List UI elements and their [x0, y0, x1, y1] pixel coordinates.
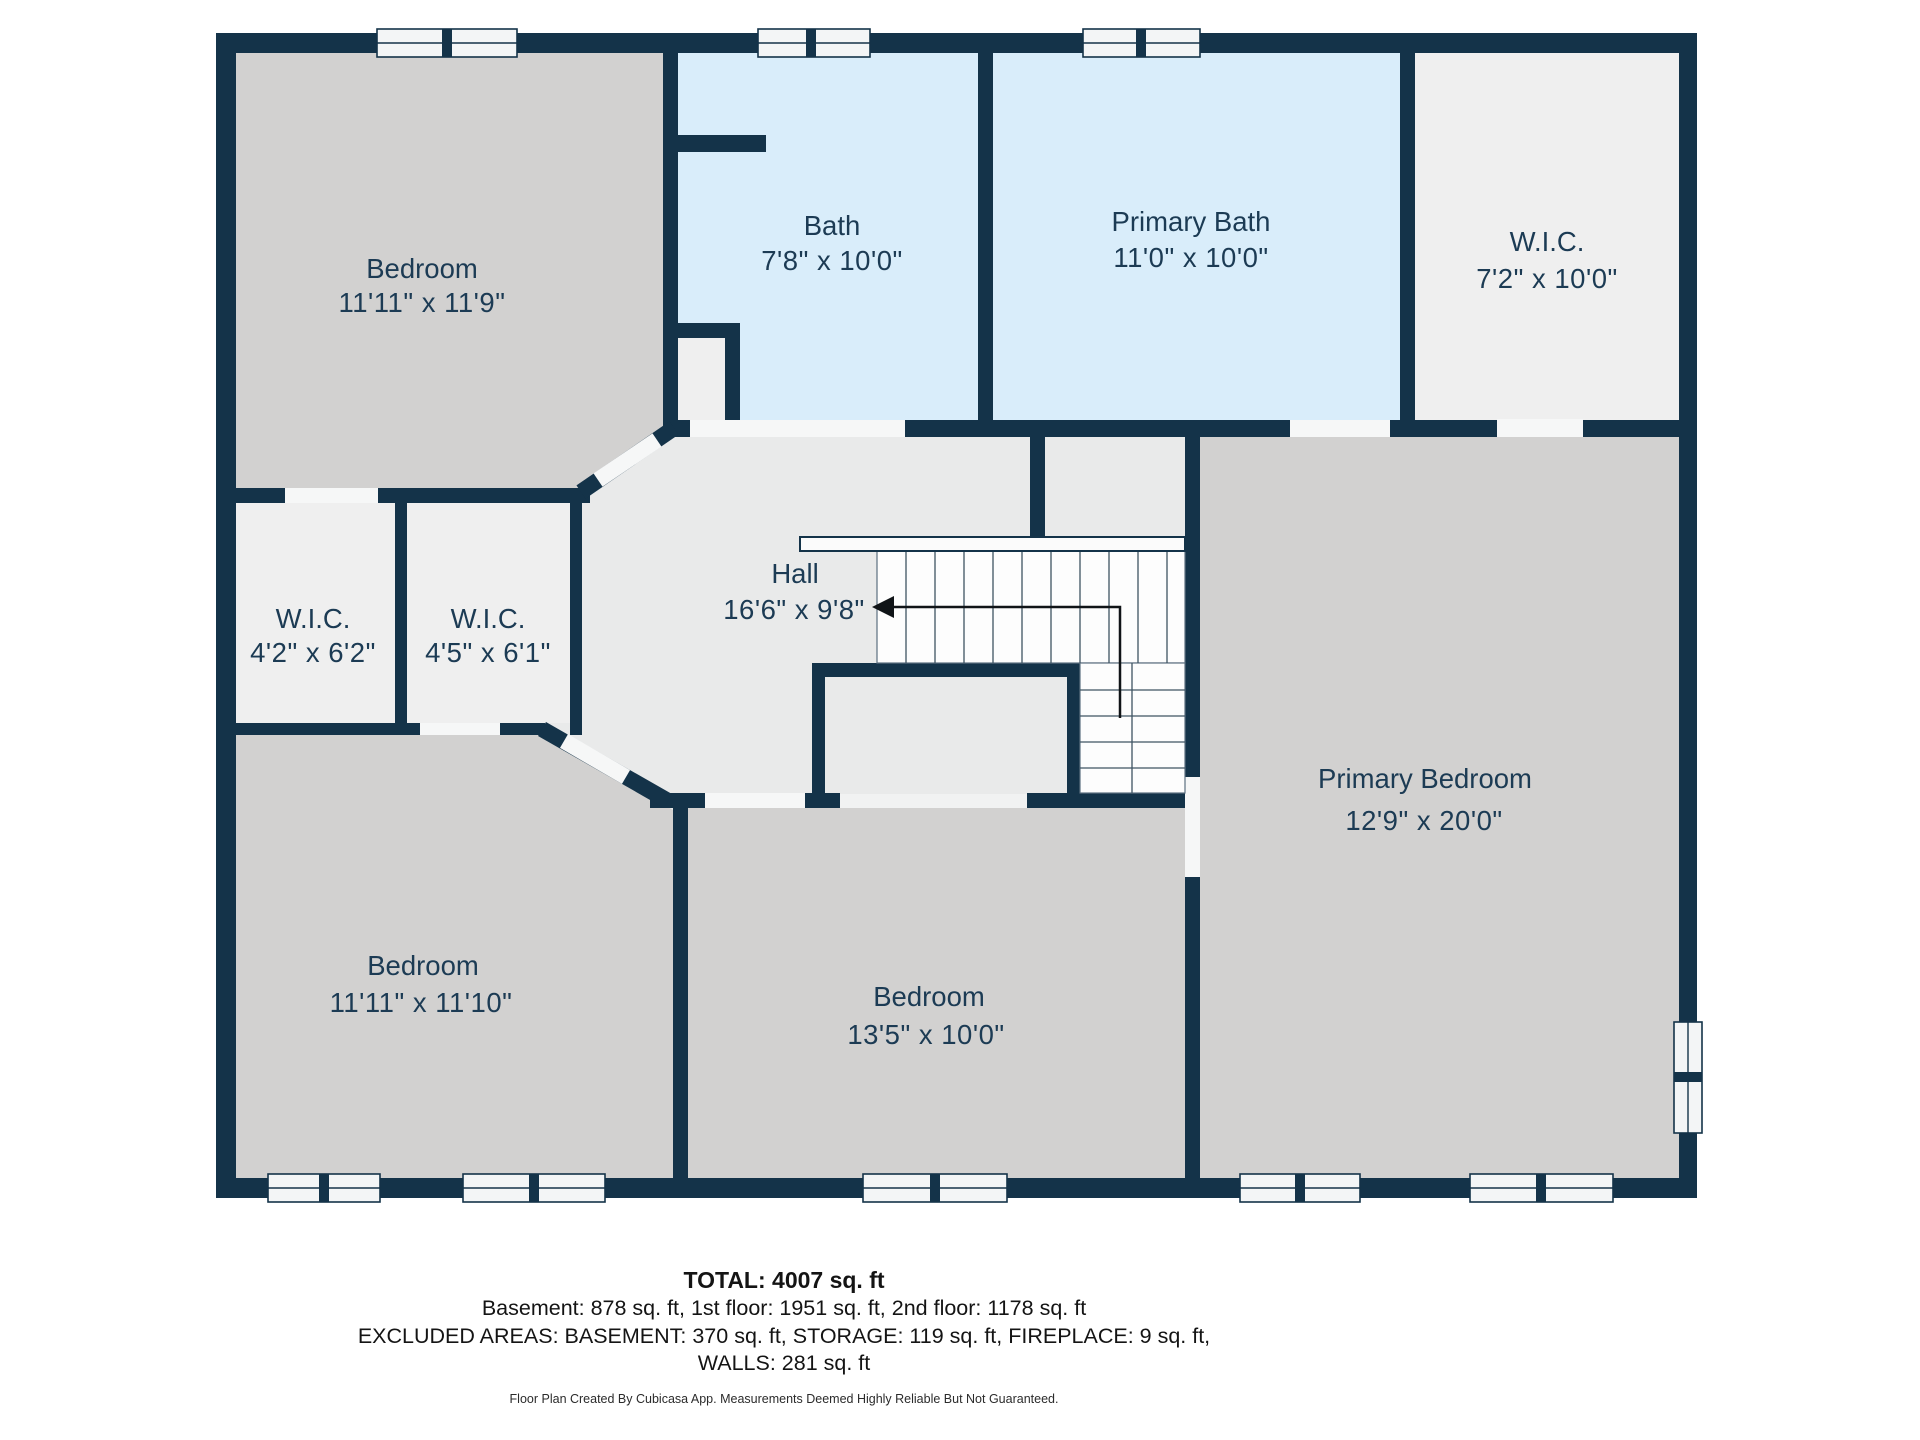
wall-wic-bottom-a	[216, 723, 420, 735]
wall-staircloset-right	[1067, 663, 1080, 793]
room-name: Bath	[804, 210, 861, 241]
door-wic-left-2	[420, 723, 500, 735]
stairs-railing	[800, 537, 1185, 551]
window-bath-top	[758, 29, 870, 57]
summary-floors: Basement: 878 sq. ft, 1st floor: 1951 sq…	[84, 1295, 1484, 1323]
room-name: Hall	[771, 558, 818, 589]
room-dims: 11'11" x 11'10"	[330, 987, 513, 1018]
room-name: W.I.C.	[451, 603, 526, 634]
wall-hall-stub	[1030, 435, 1045, 552]
wall-staircloset-top	[812, 663, 1080, 677]
wall-wic-bottom-b	[500, 723, 545, 735]
window-primary-bottom-a	[1240, 1174, 1360, 1202]
area-summary: TOTAL: 4007 sq. ft Basement: 878 sq. ft,…	[84, 1266, 1484, 1378]
door-stair-closet	[840, 794, 1027, 808]
wall-primary-left-lower	[1185, 877, 1200, 1178]
door-primary-bedroom	[1185, 777, 1200, 877]
room-dims: 11'0" x 10'0"	[1113, 242, 1268, 273]
room-name: Bedroom	[367, 950, 479, 981]
door-bedroom-bottom-middle	[705, 793, 805, 808]
room-name: Bedroom	[873, 981, 985, 1012]
window-primary-right	[1674, 1022, 1702, 1133]
floor-plan-page: Bedroom 11'11" x 11'9" Bath 7'8" x 10'0"…	[0, 0, 1920, 1440]
wall-wic2-right	[570, 490, 582, 735]
door-wic-top-right	[1497, 419, 1583, 437]
room-dims: 12'9" x 20'0"	[1345, 805, 1502, 836]
window-bedroom2-bottom-a	[268, 1174, 380, 1202]
room-name: Bedroom	[366, 253, 478, 284]
wall-bathcloset-right	[725, 323, 740, 435]
wall-bedroom1-bottom-a	[236, 488, 285, 503]
wall-toprooms-bottom-b	[905, 420, 1290, 437]
door-primary-bath	[1290, 420, 1390, 437]
room-name: Primary Bedroom	[1318, 763, 1532, 794]
window-bedroom2-bottom-b	[463, 1174, 605, 1202]
wall-primary-left-upper	[1185, 435, 1200, 777]
wall-bedroom2-right	[673, 800, 688, 1178]
room-dims: 13'5" x 10'0"	[847, 1019, 1004, 1050]
door-bath	[690, 420, 905, 437]
room-dims: 4'2" x 6'2"	[250, 637, 376, 668]
wall-toprooms-bottom-d	[1583, 420, 1679, 437]
window-bedroom3-bottom	[863, 1174, 1007, 1202]
summary-walls: WALLS: 281 sq. ft	[84, 1350, 1484, 1378]
wall-primarybath-wic	[1400, 53, 1415, 435]
room-dims: 7'8" x 10'0"	[761, 245, 903, 276]
room-dims: 11'11" x 11'9"	[339, 287, 506, 318]
wall-exterior-left	[216, 33, 236, 1198]
room-dims: 16'6" x 9'8"	[723, 594, 865, 625]
wall-bath-stub	[678, 135, 766, 152]
wall-staircloset-left	[812, 663, 825, 808]
summary-total: TOTAL: 4007 sq. ft	[84, 1266, 1484, 1295]
window-primary-bottom-b	[1470, 1174, 1613, 1202]
wall-hall-bedroom3-c	[1027, 793, 1185, 808]
disclaimer-text: Floor Plan Created By Cubicasa App. Meas…	[84, 1392, 1484, 1406]
wall-wic-divider	[395, 503, 407, 723]
room-name: Primary Bath	[1112, 206, 1271, 237]
room-dims: 4'5" x 6'1"	[425, 637, 551, 668]
room-name: W.I.C.	[276, 603, 351, 634]
wall-bedroom1-bath	[663, 53, 678, 437]
room-dims: 7'2" x 10'0"	[1476, 263, 1618, 294]
window-bedroom1-top	[377, 29, 517, 57]
wall-toprooms-bottom-c	[1390, 420, 1497, 437]
door-wic-left-1	[285, 488, 378, 503]
floor-plan-svg: Bedroom 11'11" x 11'9" Bath 7'8" x 10'0"…	[0, 0, 1920, 1440]
summary-excluded: EXCLUDED AREAS: BASEMENT: 370 sq. ft, ST…	[84, 1323, 1484, 1351]
wall-bedroom1-bottom-b	[378, 488, 590, 503]
room-name: W.I.C.	[1510, 226, 1585, 257]
window-primarybath-top	[1083, 29, 1200, 57]
wall-bath-primarybath	[978, 53, 993, 435]
